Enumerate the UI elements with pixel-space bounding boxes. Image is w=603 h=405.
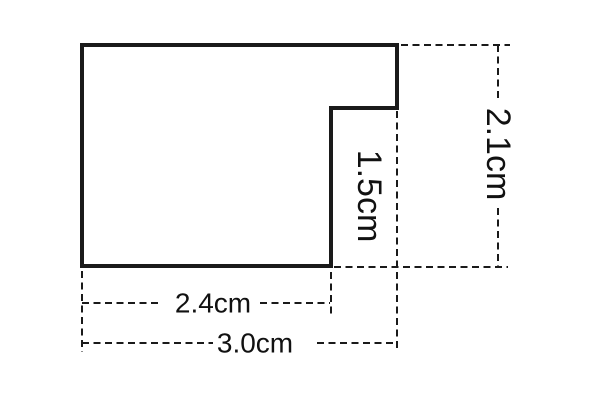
dimension-diagram: 2.4cm 3.0cm 1.5cm 2.1cm xyxy=(0,0,603,405)
shape-outline xyxy=(82,45,397,266)
label-bottom-width: 2.4cm xyxy=(175,288,251,319)
diagram-canvas: 2.4cm 3.0cm 1.5cm 2.1cm xyxy=(0,0,603,405)
label-total-width: 3.0cm xyxy=(217,328,293,359)
label-notch-height: 1.5cm xyxy=(350,150,388,243)
label-total-height: 2.1cm xyxy=(479,108,517,201)
